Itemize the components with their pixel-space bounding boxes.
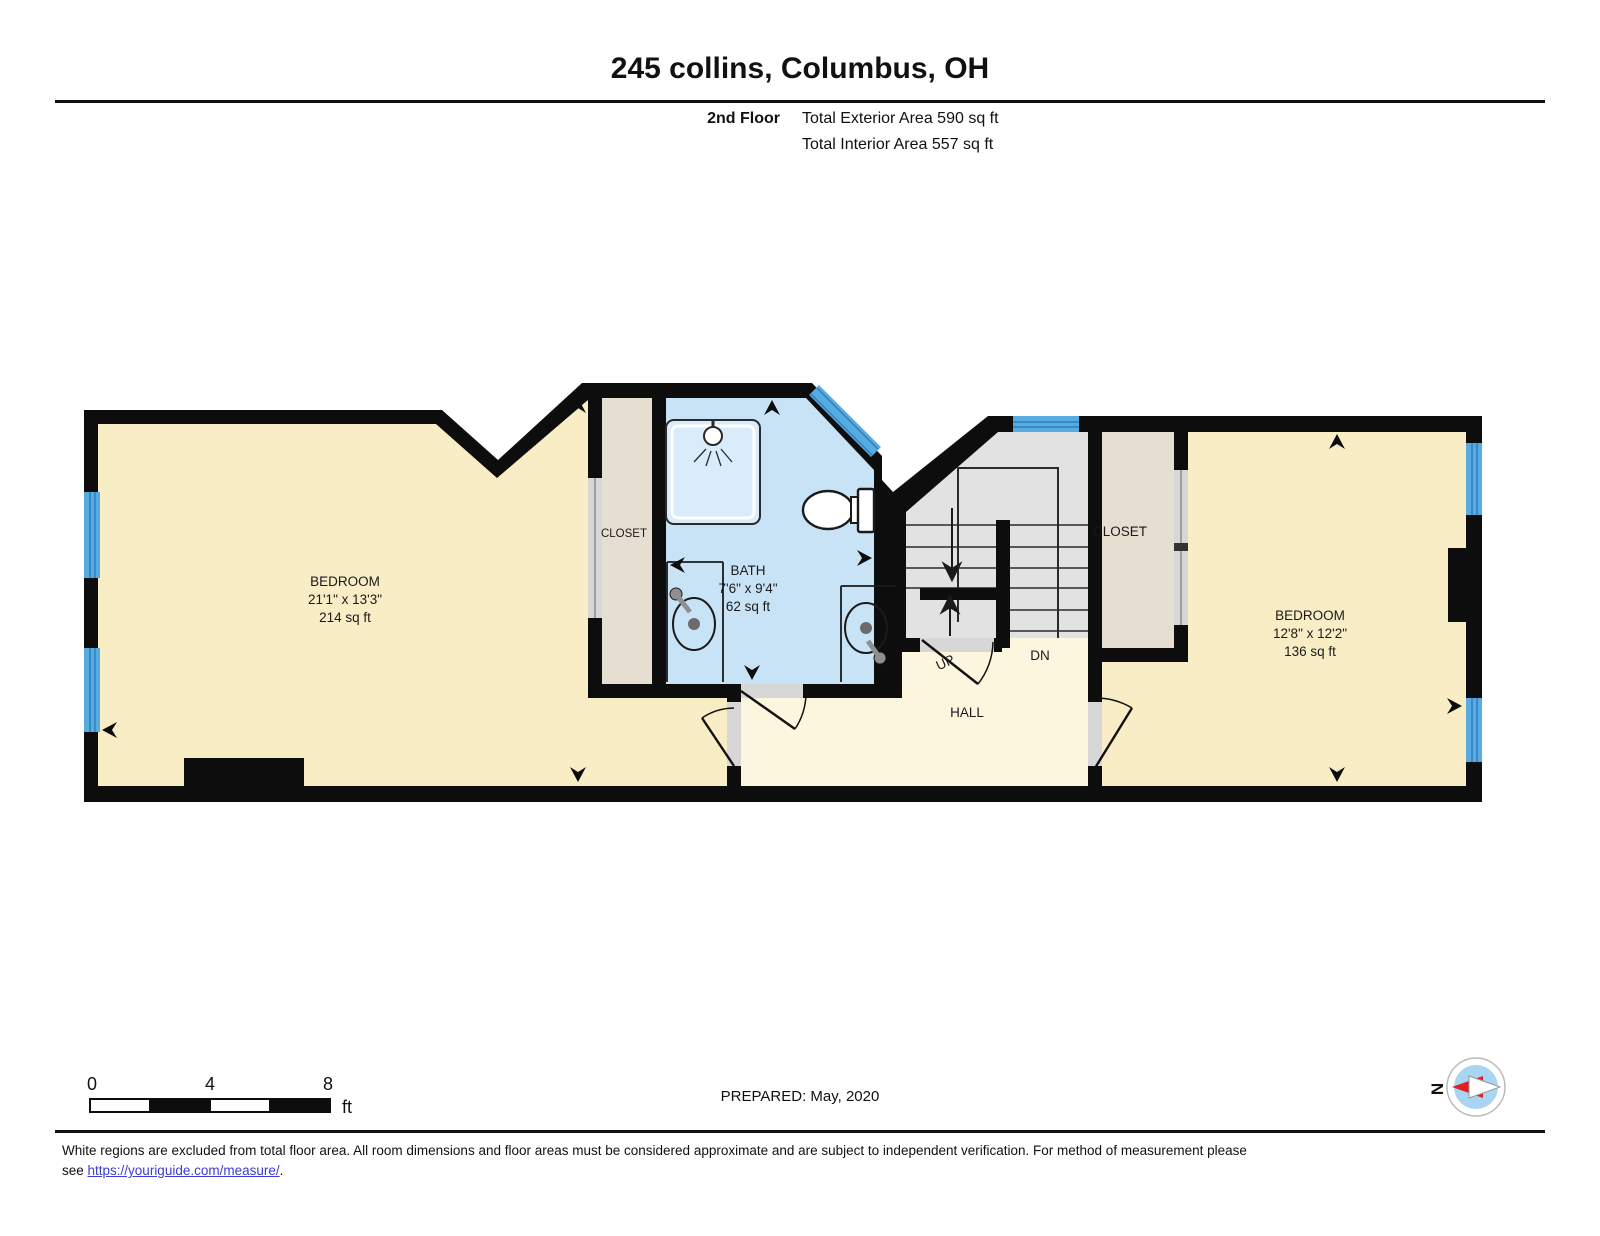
floorplan-drawing: BEDROOM 21'1" x 13'3" 214 sq ft BATH 7'6… [0,0,1600,1236]
measure-link[interactable]: https://youriguide.com/measure/ [88,1163,280,1178]
closet-left-door [588,478,602,618]
bath-name: BATH [730,563,765,578]
bedroom2-name: BEDROOM [1275,608,1345,623]
closet-left-label: CLOSET [601,528,647,540]
window-stairwell [1013,416,1079,432]
footer-divider [55,1130,1545,1133]
room-closet-left [602,398,652,684]
bath-dims: 7'6" x 9'4" [718,581,777,596]
compass-icon: N [1428,1058,1505,1116]
toilet [803,489,874,532]
floorplan-page: 245 collins, Columbus, OH 2nd Floor Tota… [0,0,1600,1236]
prepared-date: PREPARED: May, 2020 [0,1088,1600,1105]
disclaimer-line1: White regions are excluded from total fl… [62,1143,1542,1158]
stairs-down-label: DN [1030,648,1050,663]
wall-bump-bedroom2 [1448,548,1482,622]
disclaimer-period: . [280,1163,284,1178]
hall-label: HALL [950,705,984,720]
closet-right-door [1174,470,1188,625]
disclaimer-see: see [62,1163,88,1178]
bedroom1-dims: 21'1" x 13'3" [308,592,382,607]
bedroom1-name: BEDROOM [310,574,380,589]
bedroom2-dims: 12'8" x 12'2" [1273,626,1347,641]
closet-right-label: CLOSET [1093,524,1147,539]
wall-bump-bedroom1 [184,758,304,802]
window-bedroom2-upper [1466,443,1482,515]
room-closet-right [1102,432,1174,648]
shower-head-icon [704,427,722,445]
stairs-divider [996,520,1010,648]
disclaimer-line2: see https://youriguide.com/measure/. [62,1163,1542,1178]
window-bedroom2-lower [1466,698,1482,762]
bedroom1-area: 214 sq ft [319,610,371,625]
stairs-mid-wall [920,588,996,600]
window-bedroom1-lower [84,648,100,732]
bath-area: 62 sq ft [726,599,771,614]
window-bedroom1-upper [84,492,100,578]
bedroom2-area: 136 sq ft [1284,644,1336,659]
shower [666,420,760,524]
